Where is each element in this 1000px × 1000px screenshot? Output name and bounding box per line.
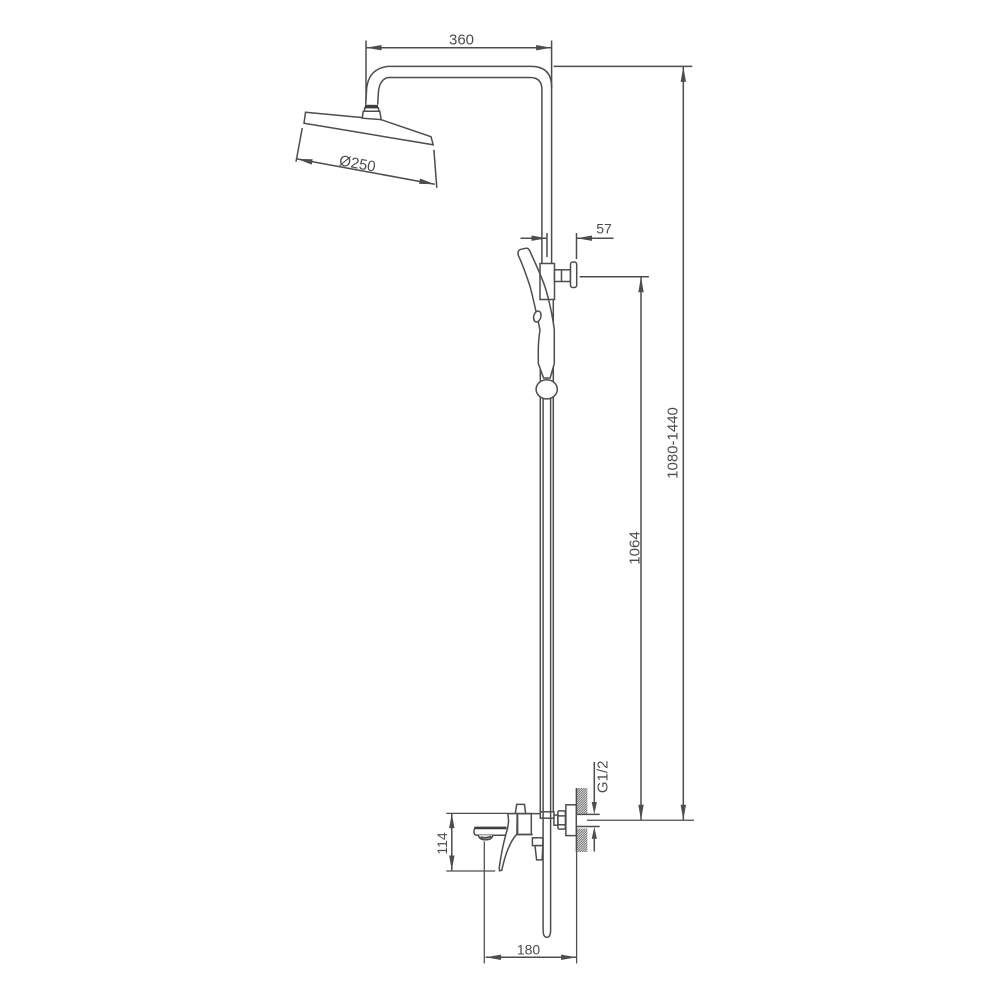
svg-text:1080-1440: 1080-1440 (665, 407, 682, 479)
svg-text:G1/2: G1/2 (595, 761, 612, 794)
svg-text:Ø250: Ø250 (338, 152, 377, 175)
svg-text:114: 114 (434, 832, 450, 855)
svg-text:57: 57 (596, 221, 612, 237)
svg-text:1064: 1064 (626, 531, 643, 564)
svg-text:180: 180 (517, 942, 541, 958)
svg-text:360: 360 (449, 32, 474, 49)
